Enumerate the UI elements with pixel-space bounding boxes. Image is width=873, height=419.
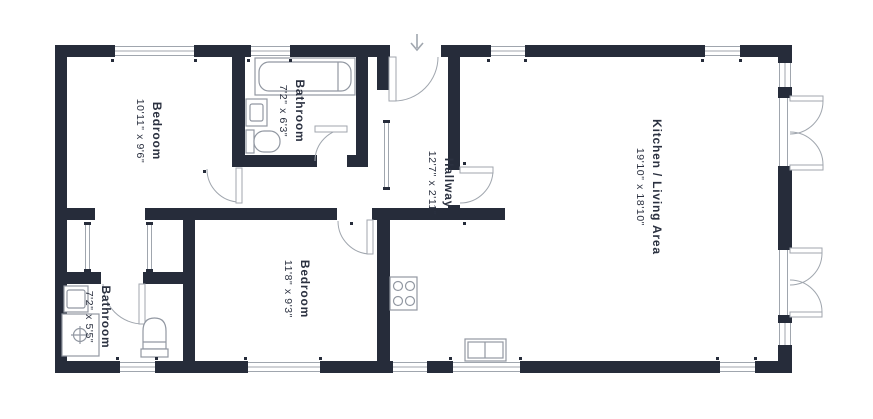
floor-plan: Bedroom 10'11" x 9'6" Bathroom 7'2" x 6'…: [0, 0, 873, 419]
room-dimensions: 7'2" x 5'5": [82, 285, 96, 348]
window: [245, 361, 323, 373]
room-name: Hallway: [441, 151, 457, 216]
window: [248, 45, 293, 57]
toilet-bathroom-ensuite: [141, 318, 168, 357]
room-label-bedroom-1: Bedroom 10'11" x 9'6": [133, 99, 165, 164]
room-label-kitchen-living: Kitchen / Living Area 19'10" x 18'10": [633, 119, 665, 255]
window: [717, 361, 758, 373]
kitchen-sink: [465, 339, 506, 361]
room-label-bathroom-ensuite: Bathroom 7'2" x 5'5": [82, 285, 114, 348]
room-name: Bathroom: [98, 285, 114, 348]
room-label-bathroom-top: Bathroom 7'2" x 6'3": [276, 79, 308, 142]
french-doors-bottom: [780, 248, 823, 317]
door-kitchen-hallway: [460, 167, 493, 203]
window: [117, 361, 158, 373]
window: [112, 45, 197, 57]
door-bedroom-2: [338, 220, 373, 254]
room-dimensions: 11'8" x 9'3": [281, 260, 295, 318]
room-label-bedroom-2: Bedroom 11'8" x 9'3": [281, 260, 313, 318]
room-label-hallway: Hallway 12'7" x 2'11": [425, 151, 457, 216]
french-doors-top: [780, 96, 824, 170]
room-dimensions: 10'11" x 9'6": [133, 99, 147, 164]
window: [778, 60, 792, 90]
window: [450, 361, 523, 373]
door-bedroom-1: [207, 168, 242, 203]
entry-door: [389, 57, 438, 101]
entry-arrow-icon: [411, 34, 423, 50]
room-name: Kitchen / Living Area: [649, 119, 665, 255]
window: [488, 45, 528, 57]
room-dimensions: 12'7" x 2'11": [425, 151, 439, 216]
window: [778, 320, 792, 348]
sink-bathroom-top: [246, 99, 267, 126]
room-dimensions: 7'2" x 6'3": [276, 79, 290, 142]
room-name: Bedroom: [149, 99, 165, 164]
door-bathroom-top: [315, 126, 347, 161]
hall-closet-door: [383, 120, 390, 190]
window: [390, 361, 430, 373]
stove: [390, 277, 417, 310]
window: [702, 45, 743, 57]
room-name: Bathroom: [292, 79, 308, 142]
wardrobe-door: [84, 222, 91, 272]
room-dimensions: 19'10" x 18'10": [633, 119, 647, 255]
wardrobe-door: [146, 222, 153, 272]
room-name: Bedroom: [297, 260, 313, 318]
